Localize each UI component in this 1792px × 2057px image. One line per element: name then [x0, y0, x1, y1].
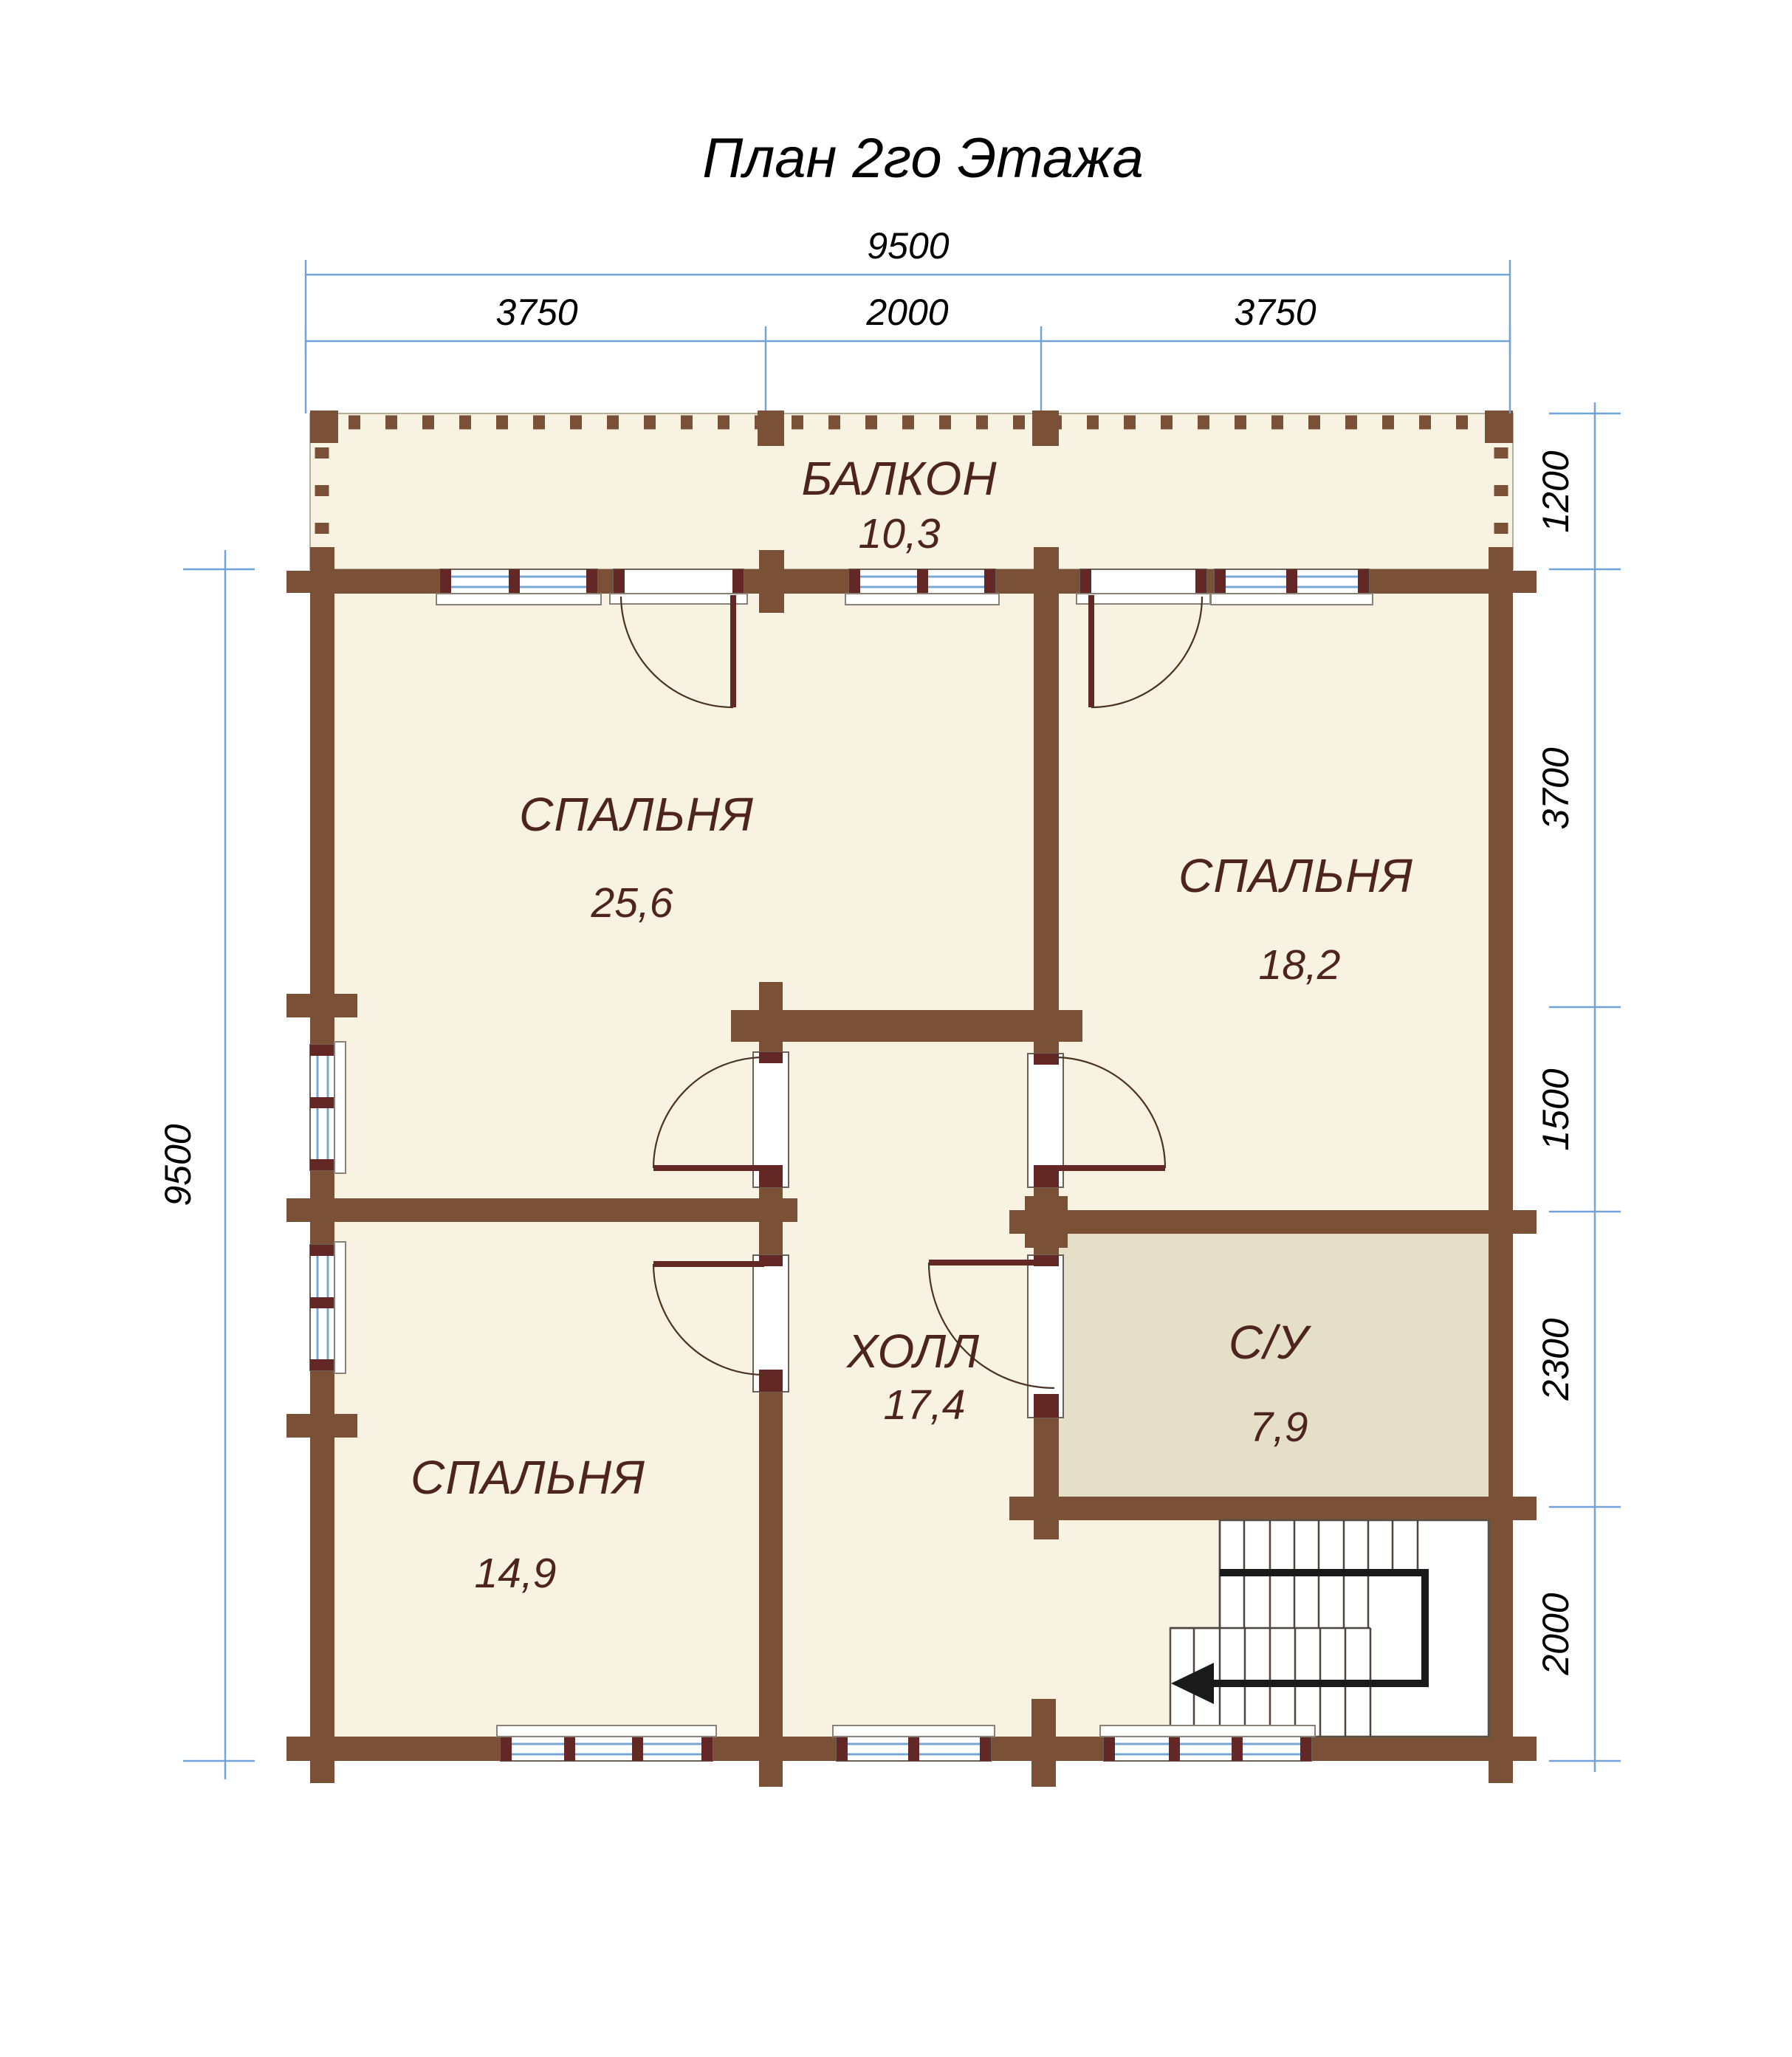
window — [845, 569, 999, 605]
dimension-right-seg4: 2300 — [1535, 1318, 1576, 1401]
hall-east-wall — [1034, 594, 1059, 1054]
floor-plan-page: План 2го Этажа БАЛКОН 10,3 — [0, 0, 1792, 2057]
dimension-right-seg3: 1500 — [1535, 1068, 1576, 1150]
bathroom-north-wall — [1009, 1210, 1489, 1234]
hall-east-wall — [1034, 1187, 1059, 1255]
floor-plan-drawing: План 2го Этажа БАЛКОН 10,3 — [0, 0, 1792, 2057]
exterior-wall-right — [1489, 569, 1513, 1761]
log-tie — [1513, 1497, 1537, 1520]
page-title: План 2го Этажа — [702, 127, 1143, 190]
dimension-top-seg1: 3750 — [495, 292, 577, 333]
log-tie — [759, 550, 784, 613]
dimension-line-top-segments — [306, 326, 1510, 411]
dimension-line-top-total — [306, 260, 1510, 413]
railing-post — [1032, 411, 1059, 446]
room-area-hall: 17,4 — [884, 1381, 966, 1429]
dimension-top-seg3: 3750 — [1234, 292, 1316, 333]
room-area-bathroom: 7,9 — [1249, 1404, 1308, 1451]
log-tie — [286, 1414, 357, 1438]
hall-east-wall — [1034, 1418, 1059, 1539]
dimension-left-total: 9500 — [157, 1124, 199, 1206]
window — [310, 1042, 346, 1173]
room-area-bedroom1: 25,6 — [591, 879, 673, 927]
balcony: БАЛКОН 10,3 — [310, 411, 1513, 569]
log-tie — [310, 1761, 334, 1783]
railing-post — [758, 411, 784, 446]
log-tie — [1489, 1761, 1513, 1783]
room-area-bedroom2: 18,2 — [1259, 941, 1341, 989]
hall-west-wall — [759, 1392, 783, 1787]
dimension-right-seg5: 2000 — [1535, 1593, 1576, 1675]
log-tie — [286, 994, 357, 1017]
log-tie — [286, 1198, 310, 1222]
railing-post — [310, 411, 338, 443]
window — [1211, 569, 1373, 605]
hall-north-wall — [731, 1010, 1082, 1042]
window — [497, 1725, 716, 1761]
log-tie — [310, 547, 334, 569]
log-tie — [1034, 547, 1059, 569]
dimension-top-total: 9500 — [867, 225, 949, 267]
log-tie — [1513, 571, 1537, 593]
window — [436, 569, 601, 605]
room-label-hall: ХОЛЛ — [845, 1325, 980, 1378]
room-label-balcony: БАЛКОН — [801, 452, 997, 505]
hall-west-wall — [759, 1187, 783, 1255]
log-tie — [1031, 1699, 1056, 1787]
dimension-right-seg1: 1200 — [1535, 450, 1576, 532]
room-label-bedroom2: СПАЛЬНЯ — [1178, 849, 1413, 902]
room-area-bedroom3: 14,9 — [475, 1550, 557, 1597]
window — [833, 1725, 995, 1761]
log-tie — [286, 571, 310, 593]
room-label-bedroom3: СПАЛЬНЯ — [411, 1451, 645, 1504]
room-area-balcony: 10,3 — [859, 510, 941, 557]
bathroom-south-wall — [1009, 1497, 1489, 1520]
bedroom3-north-wall — [334, 1198, 797, 1222]
railing-post — [1485, 411, 1513, 443]
hall-west-wall — [759, 982, 783, 1052]
window — [310, 1242, 346, 1373]
log-tie — [1489, 547, 1513, 569]
room-label-bedroom1: СПАЛЬНЯ — [519, 788, 754, 841]
dimension-top-seg2: 2000 — [865, 292, 948, 333]
log-tie — [286, 1737, 310, 1761]
log-tie — [1513, 1210, 1537, 1234]
log-tie — [1513, 1737, 1537, 1761]
room-label-bathroom: С/У — [1229, 1316, 1312, 1369]
dimension-right-seg2: 3700 — [1535, 747, 1576, 829]
window — [1100, 1725, 1315, 1761]
